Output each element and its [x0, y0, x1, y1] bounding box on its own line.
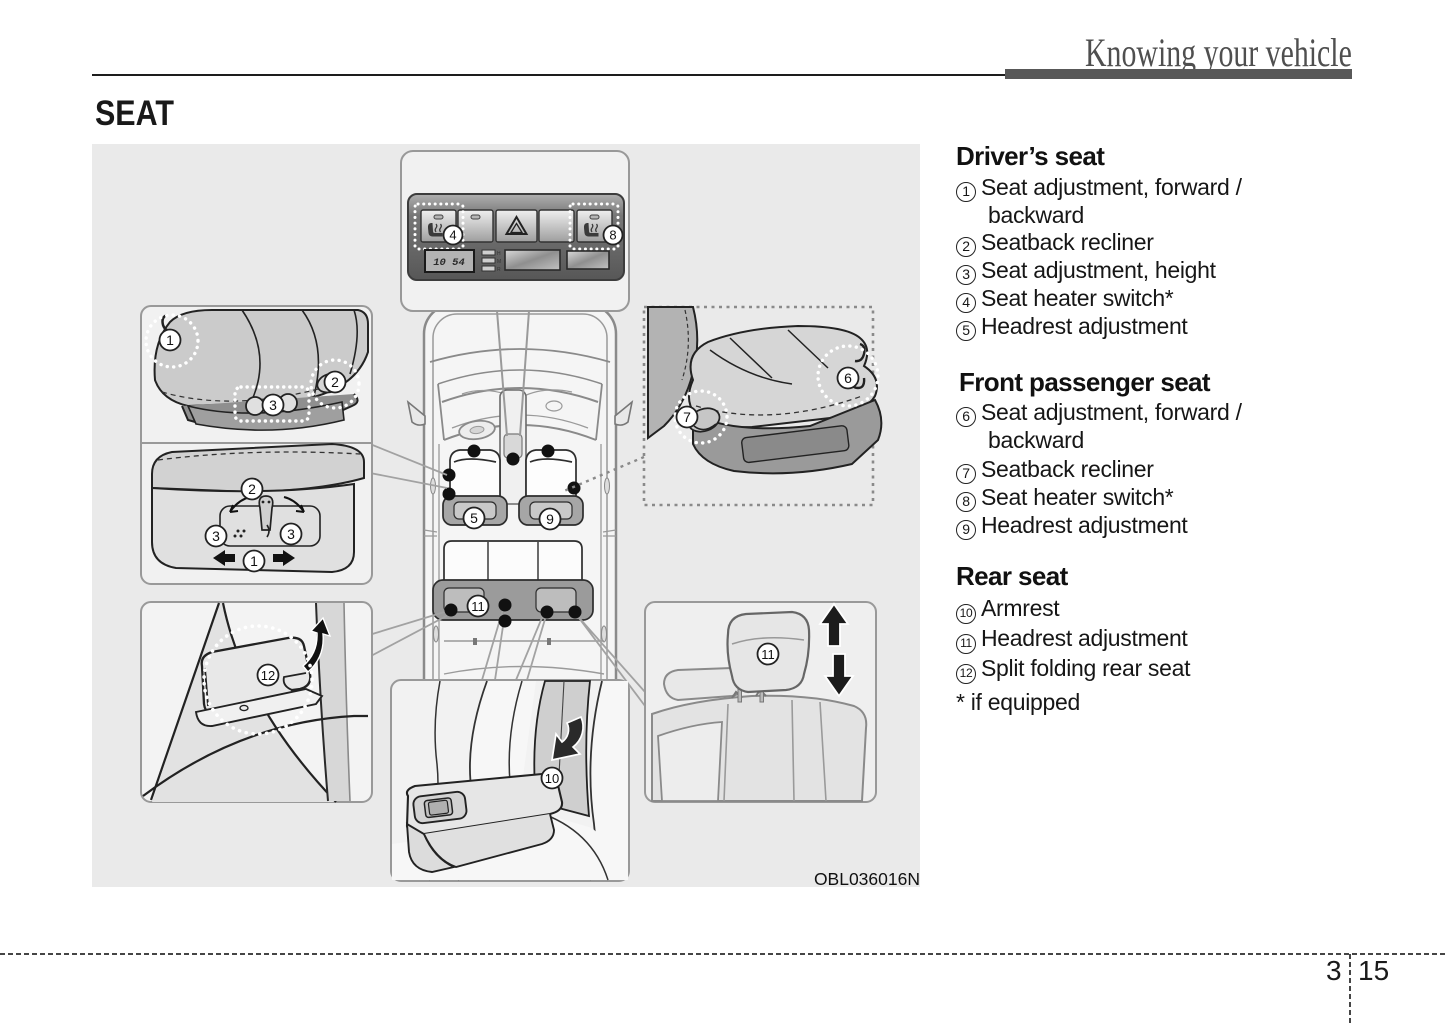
svg-text:2: 2 [331, 374, 339, 390]
svg-text:10: 10 [545, 771, 559, 786]
svg-text:R: R [497, 267, 501, 273]
svg-text:8: 8 [609, 228, 616, 243]
svg-text:3: 3 [287, 526, 295, 542]
svg-text:1: 1 [166, 332, 174, 348]
svg-text:OBL036016N: OBL036016N [814, 869, 920, 887]
svg-text:6: 6 [844, 370, 852, 386]
svg-text:12: 12 [261, 668, 275, 683]
svg-text:11: 11 [761, 647, 775, 662]
svg-text:2: 2 [248, 481, 256, 497]
svg-text:3: 3 [269, 397, 277, 413]
svg-text:7: 7 [683, 409, 691, 425]
svg-text:3: 3 [212, 528, 220, 544]
svg-text:1: 1 [250, 553, 258, 569]
svg-text:H: H [497, 251, 501, 257]
svg-text:4: 4 [449, 228, 456, 243]
svg-text:9: 9 [546, 511, 554, 527]
svg-text:11: 11 [471, 599, 485, 614]
svg-text:10 54: 10 54 [433, 257, 465, 269]
svg-text:M: M [497, 259, 501, 265]
svg-text:5: 5 [470, 510, 478, 526]
